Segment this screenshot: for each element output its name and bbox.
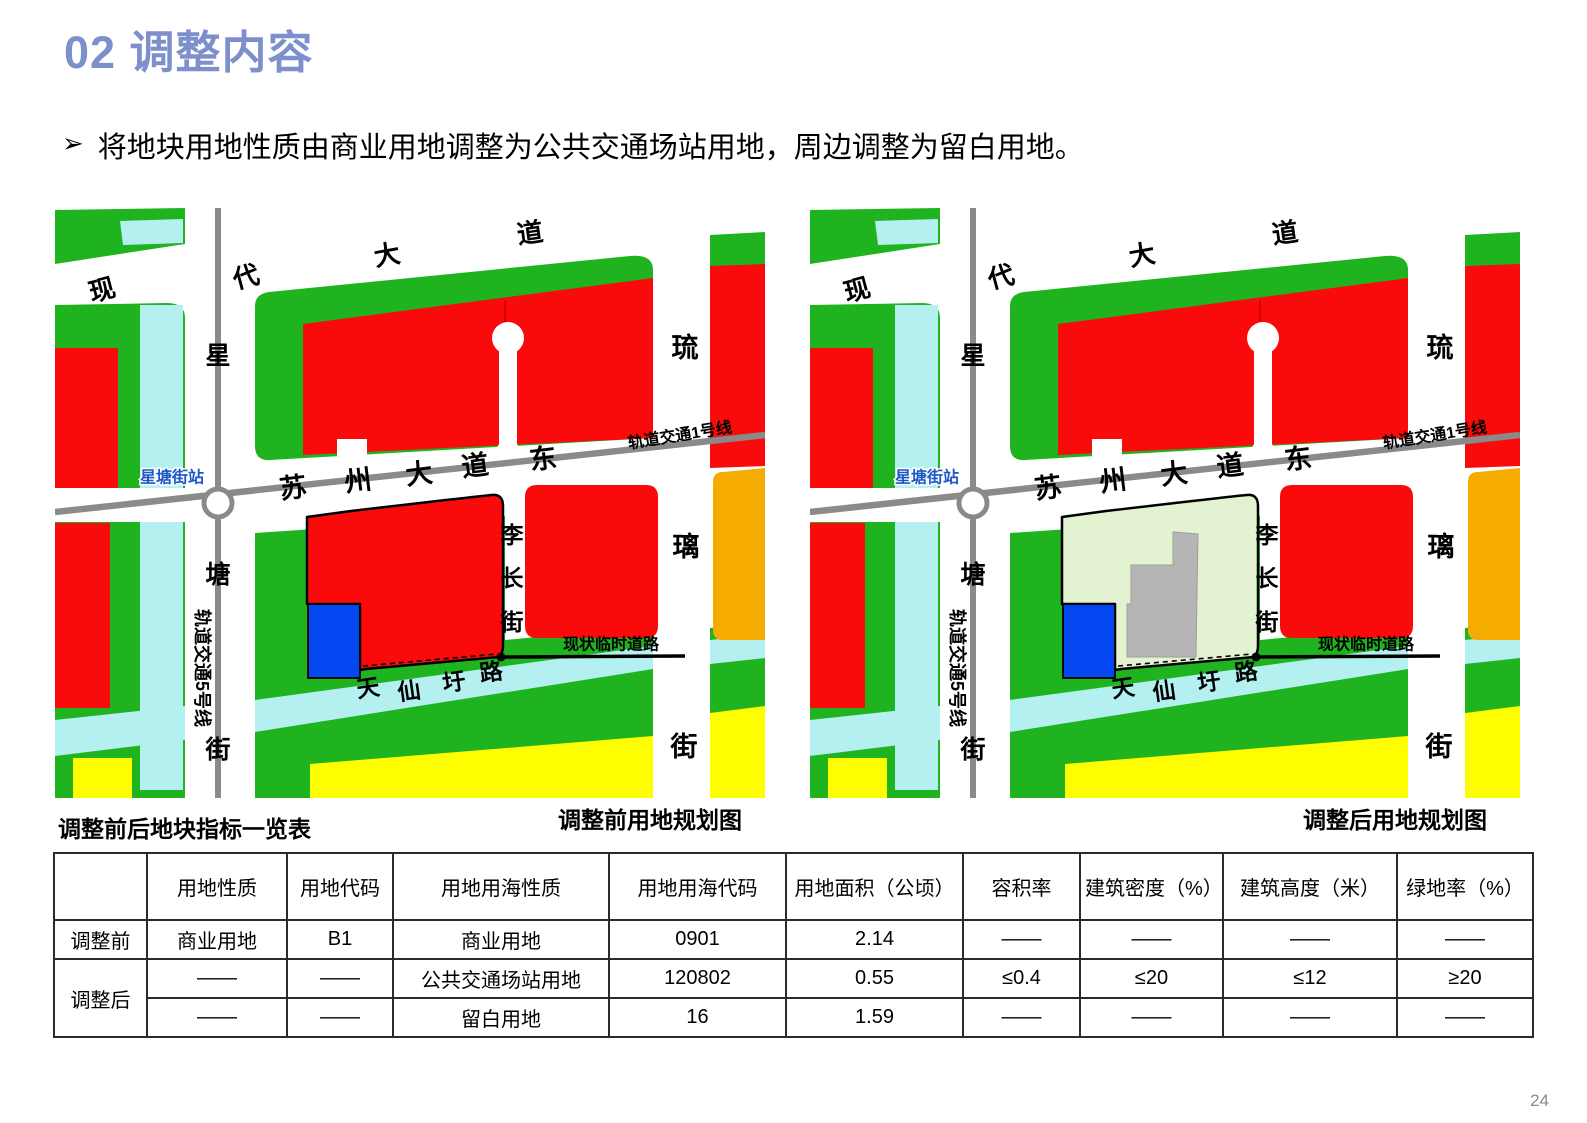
cell: ≤20 [1080,959,1223,998]
map-label: 苏 [278,471,308,504]
land-use-map-after: 现代大道星塘街轨道交通5号线苏州大道东轨道交通1号线琉璃街李长街天仙圩路现状临时… [810,208,1520,798]
cell: —— [1223,998,1397,1037]
map-label: 道 [515,216,545,249]
cell: —— [147,998,287,1037]
map-label: 街 [1255,609,1279,635]
cell: 留白用地 [393,998,609,1037]
map-label: 道 [1270,216,1300,249]
table-title: 调整前后地块指标一览表 [58,810,311,844]
map-label: 长 [1256,565,1280,591]
map-label: 街 [204,735,230,764]
map-label: 州 [343,464,373,497]
map-label: 圩 [441,668,467,697]
header-cell: 用地面积（公顷） [786,853,963,920]
map-label: 长 [501,565,525,591]
cell: ≤12 [1223,959,1397,998]
indicators-table: 用地性质 用地代码 用地用海性质 用地用海代码 用地面积（公顷） 容积率 建筑密… [53,852,1534,1038]
header-cell: 用地性质 [147,853,287,920]
map-label: 东 [528,441,559,475]
map-label: 街 [1425,732,1453,762]
map-label: 大 [404,457,434,490]
header-cell: 建筑高度（米） [1223,853,1397,920]
map-label: 路 [1233,657,1260,686]
cell: B1 [287,920,393,959]
bullet-arrow-icon: ➢ [62,124,84,162]
cell: —— [963,998,1080,1037]
cell: 商业用地 [147,920,287,959]
after-map-caption: 调整后用地规划图 [1303,801,1487,835]
cell: —— [287,998,393,1037]
cell: —— [147,959,287,998]
map-label: 大 [1159,457,1189,490]
cell: —— [1080,998,1223,1037]
map-label: 轨道交通5号线 [947,609,968,727]
map-label: 圩 [1196,668,1222,697]
header-cell: 用地用海性质 [393,853,609,920]
map-label: 璃 [1428,532,1455,562]
cell: 0901 [609,920,786,959]
map-label: 现状临时道路 [563,635,660,654]
cell: —— [1397,998,1533,1037]
map-label: 道 [460,448,491,482]
map-label: 东 [1283,441,1314,475]
cell: 1.59 [786,998,963,1037]
map-label: 街 [959,735,985,764]
map-label: 道 [1215,448,1246,482]
row-label: 调整后 [54,959,147,1037]
table-row-after-2: —— —— 留白用地 16 1.59 —— —— —— —— [54,998,1533,1037]
header-cell [54,853,147,920]
cell: ≥20 [1397,959,1533,998]
header-cell: 建筑密度（%） [1080,853,1223,920]
bullet-text: 将地块用地性质由商业用地调整为公共交通场站用地，周边调整为留白用地。 [98,124,1084,166]
header-cell: 绿地率（%） [1397,853,1533,920]
slide-page: 02 调整内容 ➢ 将地块用地性质由商业用地调整为公共交通场站用地，周边调整为留… [0,0,1587,1123]
map-label: 轨道交通5号线 [192,609,213,727]
map-label: 塘 [205,560,230,589]
cell: 商业用地 [393,920,609,959]
land-use-map-before: 现代大道星塘街轨道交通5号线苏州大道东轨道交通1号线琉璃街李长街天仙圩路现状临时… [55,208,765,798]
cell: 公共交通场站用地 [393,959,609,998]
cell: ≤0.4 [963,959,1080,998]
map-label: 仙 [1151,677,1177,706]
cell: —— [1397,920,1533,959]
map-label: 天 [1110,673,1137,702]
cell: 16 [609,998,786,1037]
cell: 0.55 [786,959,963,998]
cell: —— [287,959,393,998]
map-label: 街 [670,732,698,762]
map-label: 星塘街站 [140,468,204,487]
map-label: 星 [960,342,985,370]
table-header-row: 用地性质 用地代码 用地用海性质 用地用海代码 用地面积（公顷） 容积率 建筑密… [54,853,1533,920]
map-label: 李 [1256,522,1279,548]
page-number: 24 [1530,1091,1549,1111]
header-cell: 用地用海代码 [609,853,786,920]
map-label: 星 [205,342,230,370]
map-label: 塘 [960,560,985,589]
cell: 2.14 [786,920,963,959]
map-label: 路 [478,657,505,686]
cell: —— [1223,920,1397,959]
table-row-before: 调整前 商业用地 B1 商业用地 0901 2.14 —— —— —— —— [54,920,1533,959]
map-label: 大 [372,238,403,272]
map-label: 仙 [396,677,422,706]
row-label: 调整前 [54,920,147,959]
map-label: 李 [501,522,524,548]
bullet-item: ➢ 将地块用地性质由商业用地调整为公共交通场站用地，周边调整为留白用地。 [62,124,1084,166]
map-label: 天 [355,673,382,702]
cell: —— [963,920,1080,959]
map-label: 星塘街站 [895,468,959,487]
map-label: 街 [500,609,524,635]
map-label: 州 [1098,464,1128,497]
map-label: 现状临时道路 [1318,635,1415,654]
map-label: 苏 [1033,471,1063,504]
header-cell: 容积率 [963,853,1080,920]
header-cell: 用地代码 [287,853,393,920]
before-map-caption: 调整前用地规划图 [558,801,742,835]
map-label: 琉 [672,332,699,363]
cell: —— [1080,920,1223,959]
cell: 120802 [609,959,786,998]
map-label: 璃 [673,532,700,562]
page-title: 02 调整内容 [64,16,314,81]
map-label: 琉 [1427,332,1454,363]
table-row-after-1: 调整后 —— —— 公共交通场站用地 120802 0.55 ≤0.4 ≤20 … [54,959,1533,998]
map-label: 大 [1127,238,1158,272]
